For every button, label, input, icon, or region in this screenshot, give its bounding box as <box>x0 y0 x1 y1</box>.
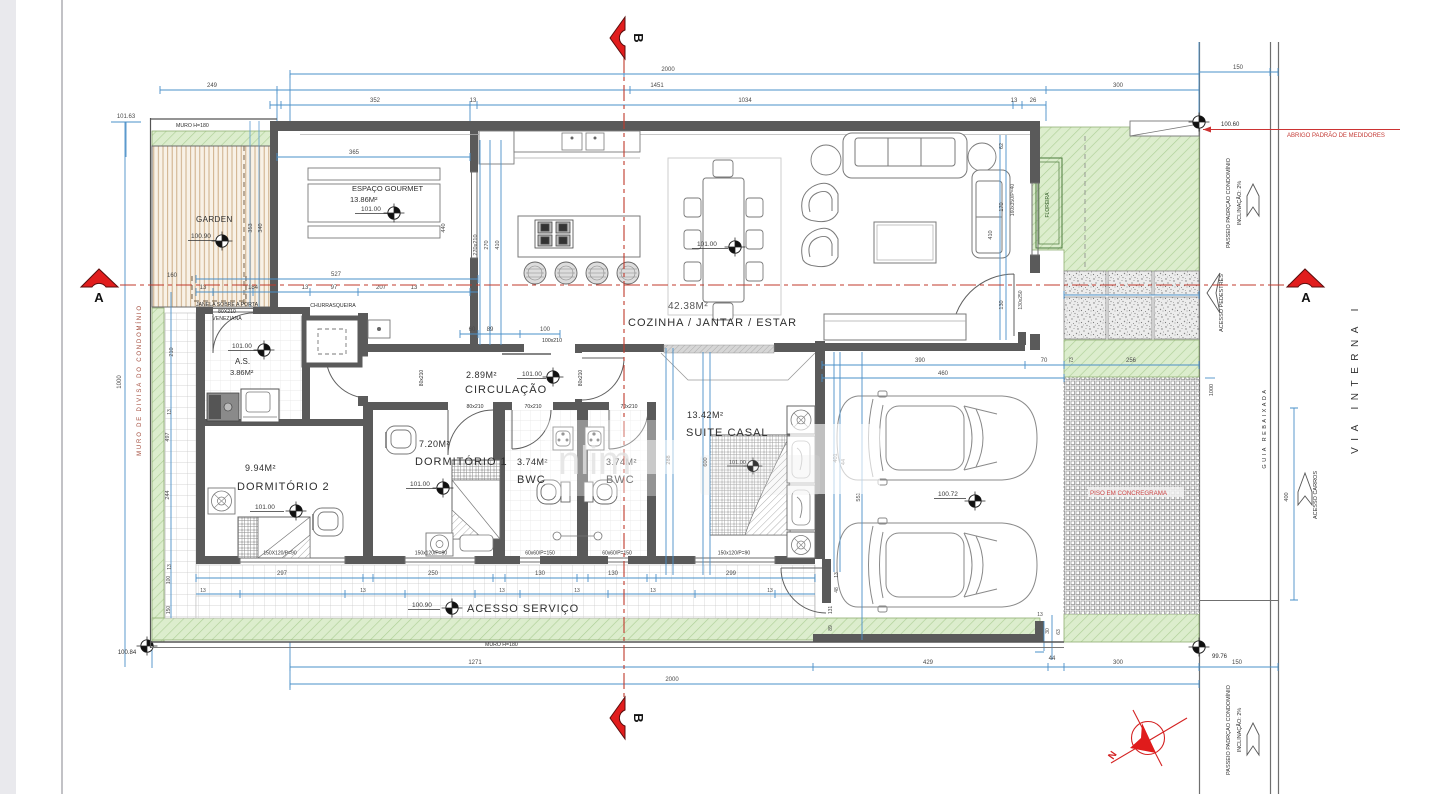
svg-text:JANELA SOBRE A PORTA: JANELA SOBRE A PORTA <box>196 302 259 308</box>
svg-text:131: 131 <box>828 606 834 615</box>
svg-text:ACESSO PEDESTRES: ACESSO PEDESTRES <box>1219 274 1225 332</box>
svg-text:100.90: 100.90 <box>412 602 432 609</box>
svg-text:B: B <box>631 33 646 42</box>
svg-text:300: 300 <box>1113 83 1124 89</box>
svg-text:FLOREIRA: FLOREIRA <box>1045 192 1051 218</box>
svg-text:2000: 2000 <box>661 67 675 73</box>
svg-text:62: 62 <box>999 143 1005 149</box>
svg-text:1000: 1000 <box>1209 384 1215 396</box>
svg-text:70: 70 <box>1041 358 1048 364</box>
svg-text:VIA INTERNA I: VIA INTERNA I <box>1350 302 1361 454</box>
svg-text:460: 460 <box>938 371 949 377</box>
svg-text:48: 48 <box>834 587 840 593</box>
svg-text:429: 429 <box>923 660 934 666</box>
svg-text:44: 44 <box>1049 656 1056 662</box>
svg-text:26: 26 <box>1030 98 1037 104</box>
svg-text:150: 150 <box>1233 65 1244 71</box>
svg-text:COZINHA / JANTAR / ESTAR: COZINHA / JANTAR / ESTAR <box>628 317 797 329</box>
svg-text:184: 184 <box>248 285 259 291</box>
svg-text:60x60/P=150: 60x60/P=150 <box>525 551 555 557</box>
svg-text:527: 527 <box>331 272 342 278</box>
svg-text:130: 130 <box>999 300 1005 309</box>
svg-text:70x210: 70x210 <box>620 404 637 410</box>
svg-text:PISO EM CONCREGRAMA: PISO EM CONCREGRAMA <box>1090 490 1168 497</box>
svg-text:390: 390 <box>915 358 926 364</box>
svg-text:ACESSO CARROS: ACESSO CARROS <box>1313 471 1319 519</box>
svg-text:101.00: 101.00 <box>361 206 381 213</box>
svg-text:1034: 1034 <box>738 98 752 104</box>
svg-text:nlim: nlim <box>558 439 631 483</box>
svg-text:13: 13 <box>200 588 206 594</box>
svg-text:3.74M²: 3.74M² <box>517 457 548 467</box>
svg-text:PASSEIO PADRÇAO CONDOMÍNIO: PASSEIO PADRÇAO CONDOMÍNIO <box>1225 684 1232 775</box>
svg-text:101.00: 101.00 <box>255 504 275 511</box>
svg-text:73: 73 <box>1069 357 1075 363</box>
svg-text:DORMITÓRIO 1: DORMITÓRIO 1 <box>415 455 508 468</box>
svg-text:A.S.: A.S. <box>235 357 250 366</box>
svg-text:1000: 1000 <box>117 375 123 389</box>
svg-text:ABRIGO PADRÃO DE MEDIDORES: ABRIGO PADRÃO DE MEDIDORES <box>1287 132 1385 139</box>
svg-text:400: 400 <box>1284 492 1290 501</box>
svg-text:13: 13 <box>767 588 773 594</box>
svg-text:13: 13 <box>167 409 173 415</box>
svg-text:INCLINAÇÃO: 2%: INCLINAÇÃO: 2% <box>1236 181 1243 226</box>
svg-text:100.84: 100.84 <box>118 650 137 656</box>
svg-text:89: 89 <box>828 625 834 631</box>
svg-text:ACESSO SERVIÇO: ACESSO SERVIÇO <box>467 603 579 615</box>
svg-text:GARDEN: GARDEN <box>196 215 233 224</box>
svg-text:100: 100 <box>166 576 172 585</box>
svg-text:299: 299 <box>726 571 737 577</box>
svg-text:80x210: 80x210 <box>419 370 425 387</box>
svg-text:89: 89 <box>487 327 494 333</box>
svg-text:80x210: 80x210 <box>578 370 584 387</box>
svg-text:270: 270 <box>484 240 490 249</box>
svg-text:B: B <box>631 713 646 722</box>
svg-text:410: 410 <box>988 230 994 239</box>
svg-text:256: 256 <box>1126 358 1137 364</box>
svg-text:13.42M²: 13.42M² <box>687 410 724 420</box>
svg-text:GUIA REBAIXADA: GUIA REBAIXADA <box>1262 387 1268 468</box>
svg-text:150X120/P=90: 150X120/P=90 <box>263 551 296 557</box>
svg-text:150: 150 <box>166 606 172 615</box>
svg-text:2000: 2000 <box>665 677 679 683</box>
svg-text:97: 97 <box>331 285 338 291</box>
svg-text:70x210: 70x210 <box>524 404 541 410</box>
svg-text:130: 130 <box>535 571 546 577</box>
svg-text:13: 13 <box>360 588 366 594</box>
svg-text:CIRCULAÇÃO: CIRCULAÇÃO <box>465 383 547 396</box>
svg-text:297: 297 <box>277 571 288 577</box>
svg-text:170: 170 <box>999 202 1005 211</box>
svg-text:101.00: 101.00 <box>410 481 430 488</box>
svg-text:3.86M²: 3.86M² <box>230 368 254 377</box>
svg-text:249: 249 <box>207 83 218 89</box>
svg-text:60x60/P=150: 60x60/P=150 <box>602 551 632 557</box>
svg-text:13: 13 <box>834 572 840 578</box>
svg-text:A: A <box>94 290 104 305</box>
svg-text:CHURRASQUEIRA: CHURRASQUEIRA <box>310 303 356 309</box>
svg-text:497: 497 <box>165 432 171 441</box>
svg-text:207: 207 <box>376 285 387 291</box>
svg-text:SUITE CASAL: SUITE CASAL <box>686 427 769 439</box>
svg-text:PASSEIO PADRÇAO CONDOMÍNIO: PASSEIO PADRÇAO CONDOMÍNIO <box>1225 157 1232 248</box>
svg-text:13: 13 <box>200 285 207 291</box>
svg-text:13: 13 <box>1011 98 1018 104</box>
svg-text:42.38M²: 42.38M² <box>668 301 708 312</box>
svg-text:INCLINAÇÃO: 2%: INCLINAÇÃO: 2% <box>1236 708 1243 753</box>
svg-text:365: 365 <box>349 150 360 156</box>
svg-text:150x120/P=90: 150x120/P=90 <box>415 551 448 557</box>
svg-text:352: 352 <box>370 98 381 104</box>
svg-text:101.00: 101.00 <box>232 343 252 350</box>
svg-text:13: 13 <box>411 285 418 291</box>
svg-text:13: 13 <box>302 285 309 291</box>
svg-text:99.76: 99.76 <box>1212 654 1228 660</box>
svg-text:150x120/P=90: 150x120/P=90 <box>718 551 751 557</box>
svg-text:80x210: 80x210 <box>466 404 483 410</box>
svg-text:300: 300 <box>1113 660 1124 666</box>
svg-text:7.20M²: 7.20M² <box>419 439 450 449</box>
svg-text:13: 13 <box>574 588 580 594</box>
svg-text:100: 100 <box>540 327 551 333</box>
svg-text:160x350/P=40: 160x350/P=40 <box>1010 184 1016 217</box>
svg-text:410: 410 <box>495 240 501 249</box>
svg-text:101.00: 101.00 <box>697 241 717 248</box>
svg-text:DORMITÓRIO 2: DORMITÓRIO 2 <box>237 480 330 493</box>
svg-text:101.00: 101.00 <box>522 371 542 378</box>
svg-text:210: 210 <box>169 347 175 356</box>
svg-text:13: 13 <box>470 98 477 104</box>
svg-text:A: A <box>1301 290 1311 305</box>
svg-text:100.60: 100.60 <box>1221 122 1240 128</box>
svg-text:244: 244 <box>165 490 171 499</box>
svg-text:2.89M²: 2.89M² <box>466 370 497 380</box>
svg-text:340: 340 <box>258 223 264 232</box>
svg-text:353: 353 <box>248 223 254 232</box>
svg-text:1451: 1451 <box>650 83 664 89</box>
svg-text:100x210: 100x210 <box>542 338 562 344</box>
svg-text:MURO H=180: MURO H=180 <box>176 123 209 129</box>
svg-text:1271: 1271 <box>468 660 482 666</box>
svg-text:30: 30 <box>1045 628 1051 634</box>
svg-text:13.86M²: 13.86M² <box>350 195 378 204</box>
svg-text:13: 13 <box>1037 612 1043 618</box>
svg-text:130x250: 130x250 <box>1018 290 1024 309</box>
svg-text:250: 250 <box>428 571 439 577</box>
svg-text:100.90: 100.90 <box>191 233 211 240</box>
svg-text:MURO DE DIVISA DO CONDOMÍNIO: MURO DE DIVISA DO CONDOMÍNIO <box>136 304 143 456</box>
svg-text:13: 13 <box>167 564 173 570</box>
svg-text:9.94M²: 9.94M² <box>245 463 276 473</box>
svg-text:440: 440 <box>441 223 447 232</box>
svg-text:13: 13 <box>499 588 505 594</box>
svg-text:BWC: BWC <box>517 474 546 486</box>
svg-text:100.72: 100.72 <box>938 491 958 498</box>
svg-text:101.63: 101.63 <box>117 114 136 120</box>
svg-text:130: 130 <box>608 571 619 577</box>
svg-text:ESPAÇO GOURMET: ESPAÇO GOURMET <box>352 184 424 193</box>
svg-text:160: 160 <box>167 273 178 279</box>
svg-text:150: 150 <box>1232 660 1243 666</box>
svg-text:80X210: 80X210 <box>218 309 236 315</box>
svg-text:60: 60 <box>469 327 476 333</box>
svg-text:VENEZIANA: VENEZIANA <box>212 316 242 322</box>
svg-text:270x210: 270x210 <box>473 234 479 255</box>
svg-text:13: 13 <box>650 588 656 594</box>
svg-text:63: 63 <box>1056 629 1062 635</box>
